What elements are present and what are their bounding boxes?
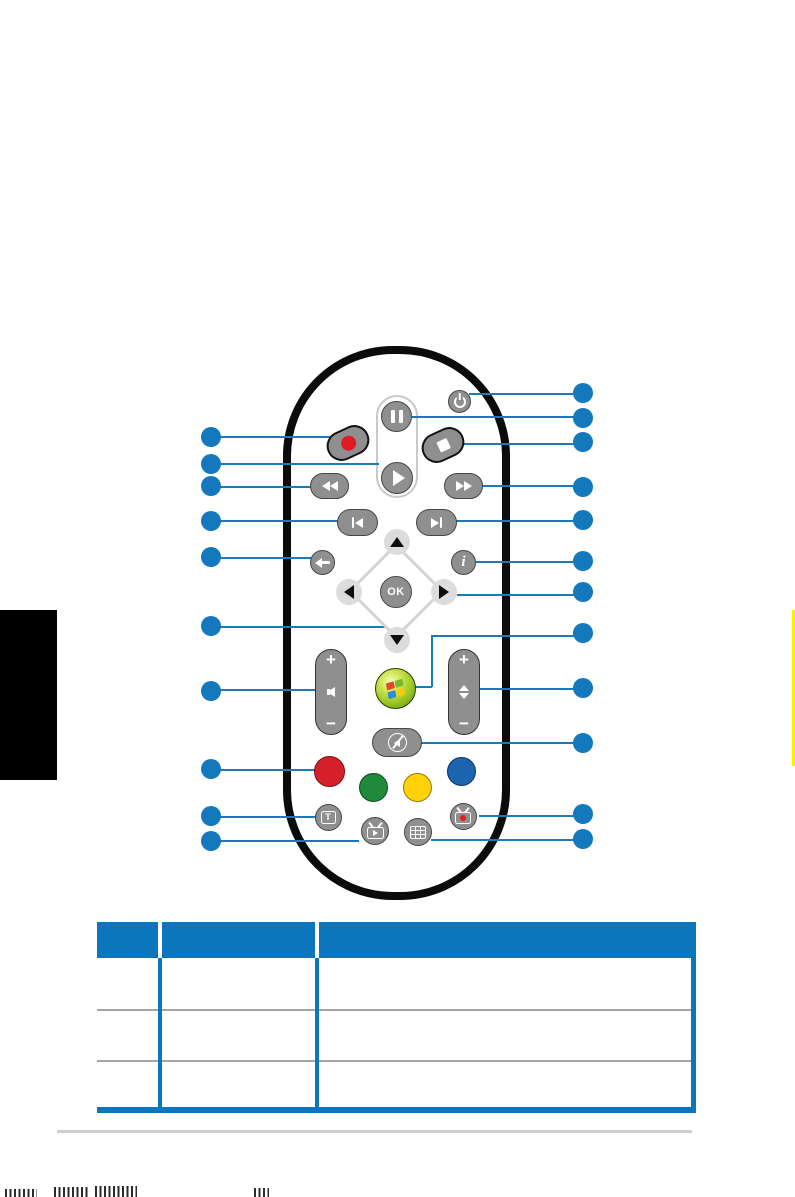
- table-header-row: [97, 922, 696, 958]
- callout-line: [212, 557, 312, 559]
- callout-dot: [201, 547, 221, 567]
- green-button: [359, 773, 388, 802]
- callout-line: [456, 520, 583, 522]
- callout-dot: [573, 678, 593, 698]
- callout-dot: [573, 510, 593, 530]
- callout-dot: [573, 804, 593, 824]
- dpad-right-button: [431, 579, 457, 605]
- table-header-gap: [158, 922, 162, 958]
- callout-dot: [201, 454, 221, 474]
- callout-line: [420, 742, 583, 744]
- footer-text-clipped: [5, 1189, 37, 1197]
- ok-label: OK: [387, 586, 405, 598]
- mute-button: [372, 728, 422, 757]
- callout-dot: [573, 829, 593, 849]
- callout-dot: [573, 582, 593, 602]
- next-track-button: [416, 509, 457, 536]
- callout-line: [212, 463, 379, 465]
- play-icon: [393, 470, 405, 486]
- previous-track-button: [337, 509, 378, 536]
- channel-up-down-icon: [459, 685, 469, 699]
- recorded-tv-icon: [455, 812, 471, 824]
- channel-rocker: + −: [448, 649, 480, 735]
- callout-dot: [573, 477, 593, 497]
- callout-dot: [201, 476, 221, 496]
- callout-line: [212, 769, 315, 771]
- dpad-right-icon: [439, 585, 449, 599]
- rewind-button: [310, 473, 349, 499]
- guide-icon: [410, 826, 426, 839]
- callout-line: [212, 816, 316, 818]
- dpad-up-button: [384, 529, 410, 555]
- callout-dot: [201, 511, 221, 531]
- next-track-icon: [431, 517, 443, 528]
- footer-text-clipped: [54, 1187, 90, 1197]
- callout-dot: [201, 681, 221, 701]
- footer-text-clipped: [95, 1186, 137, 1197]
- volume-up-label: +: [326, 654, 336, 666]
- windows-media-center-button: [375, 668, 416, 709]
- tv-button: [361, 817, 389, 845]
- pause-icon: [391, 410, 403, 423]
- callout-line: [212, 840, 359, 842]
- callout-line: [479, 815, 583, 817]
- callout-line: [457, 594, 583, 596]
- callout-line: [431, 635, 583, 637]
- windows-media-center-icon: [386, 678, 405, 698]
- table-row-divider: [97, 1060, 696, 1062]
- callout-line: [212, 520, 339, 522]
- guide-button: [404, 818, 432, 846]
- callout-line: [212, 436, 334, 438]
- callout-line: [459, 443, 583, 445]
- footer-text-clipped: [254, 1188, 269, 1197]
- info-icon: i: [461, 554, 465, 571]
- previous-track-icon: [352, 517, 364, 528]
- power-icon: [454, 396, 466, 408]
- pause-button: [381, 401, 412, 432]
- callout-line: [212, 486, 313, 488]
- blue-button: [447, 757, 476, 786]
- tv-play-icon: [367, 827, 384, 839]
- teletext-icon: T: [321, 811, 336, 824]
- callout-dot: [573, 432, 593, 452]
- callout-line: [469, 393, 583, 395]
- callout-dot: [573, 623, 593, 643]
- play-button: [381, 462, 413, 494]
- legend-table: [97, 922, 696, 1113]
- rewind-icon: [322, 481, 338, 491]
- table-column-divider: [315, 958, 319, 1107]
- table-header-gap: [315, 922, 319, 958]
- callout-dot: [201, 616, 221, 636]
- recorded-tv-button: [450, 803, 477, 830]
- callout-dot: [201, 427, 221, 447]
- callout-dot: [573, 733, 593, 753]
- callout-line: [480, 688, 583, 690]
- callout-dot: [573, 551, 593, 571]
- dpad-up-icon: [390, 537, 404, 547]
- dpad-left-icon: [344, 585, 354, 599]
- ok-button: OK: [380, 576, 412, 608]
- footer-rule: [57, 1130, 692, 1133]
- callout-line: [431, 635, 433, 687]
- callout-dot: [573, 383, 593, 403]
- dpad-left-button: [336, 579, 362, 605]
- speaker-icon: [327, 687, 335, 697]
- table-row-divider: [97, 1009, 696, 1011]
- callout-dot: [201, 831, 221, 851]
- chapter-edge-tab: [0, 610, 57, 780]
- manual-page: i OK + − + − T: [0, 0, 795, 1197]
- callout-line: [411, 416, 583, 418]
- table-column-divider: [158, 958, 162, 1107]
- channel-up-label: +: [459, 654, 469, 666]
- channel-down-label: −: [459, 718, 469, 730]
- callout-line: [476, 561, 583, 563]
- record-icon: [338, 433, 358, 453]
- fast-forward-button: [444, 473, 483, 499]
- volume-rocker: + −: [315, 649, 347, 735]
- back-arrow-icon: [315, 558, 330, 568]
- callout-dot: [201, 806, 221, 826]
- volume-down-label: −: [326, 718, 336, 730]
- callout-line: [481, 485, 583, 487]
- power-button: [448, 390, 471, 413]
- callout-line: [212, 689, 317, 691]
- callout-line: [431, 839, 583, 841]
- callout-line: [212, 626, 399, 628]
- yellow-button: [403, 773, 432, 802]
- table-right-border: [691, 922, 696, 1113]
- callout-dot: [573, 408, 593, 428]
- back-button: [310, 550, 335, 575]
- fast-forward-icon: [456, 481, 472, 491]
- callout-dot: [201, 759, 221, 779]
- mute-icon: [388, 733, 407, 752]
- stop-icon: [436, 438, 451, 453]
- red-button: [314, 756, 345, 787]
- dpad-down-icon: [390, 635, 404, 645]
- dpad-down-button: [384, 627, 410, 653]
- teletext-button: T: [315, 804, 342, 831]
- table-bottom-border: [97, 1107, 696, 1113]
- info-button: i: [451, 550, 476, 575]
